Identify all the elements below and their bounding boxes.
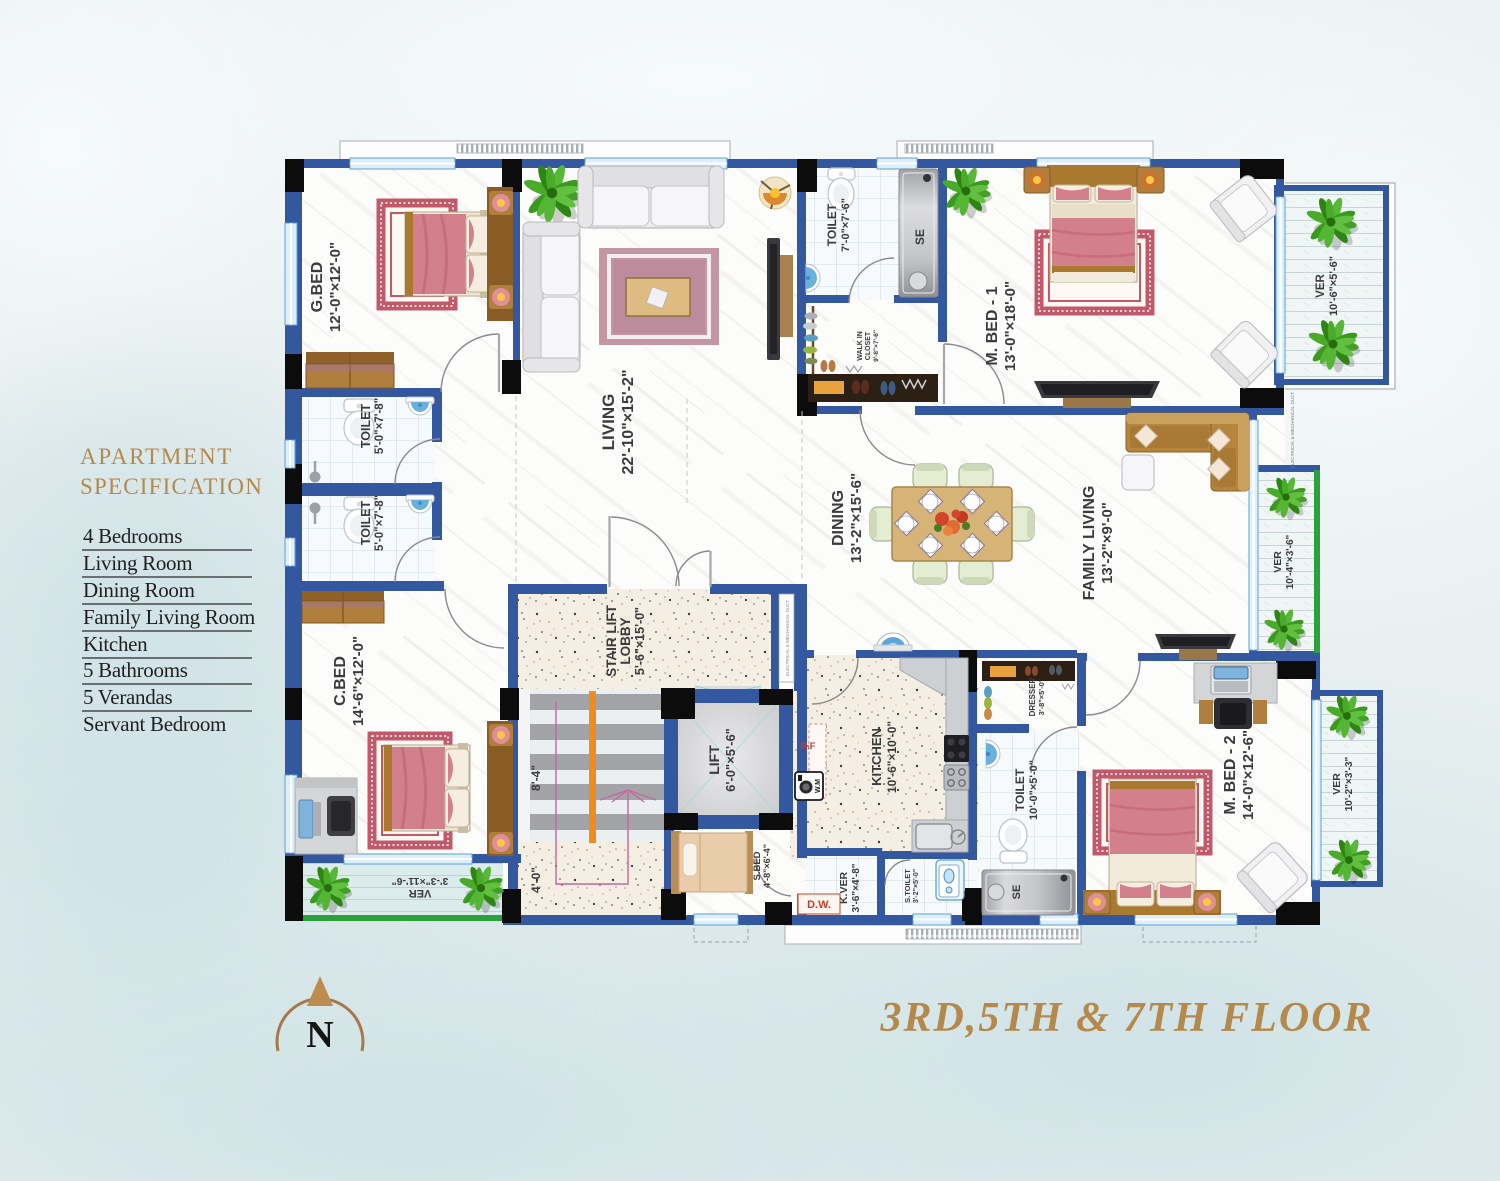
svg-text:FAMILY LIVING: FAMILY LIVING	[1081, 486, 1098, 601]
svg-text:LOBBY: LOBBY	[618, 617, 633, 664]
svg-text:CLOSET: CLOSET	[865, 331, 872, 360]
svg-text:M. BED - 1: M. BED - 1	[984, 286, 1001, 365]
svg-text:W.M: W.M	[815, 779, 822, 793]
svg-text:SE: SE	[913, 229, 927, 245]
svg-text:13'-2"×15'-6": 13'-2"×15'-6"	[848, 473, 865, 563]
svg-text:Dining Room: Dining Room	[83, 578, 195, 602]
svg-text:13'-0"×18'-0": 13'-0"×18'-0"	[1002, 281, 1019, 371]
svg-text:4'-0": 4'-0"	[529, 867, 543, 893]
svg-text:3'-6"×4'-8": 3'-6"×4'-8"	[851, 863, 862, 912]
svg-text:22'-10"×15'-2": 22'-10"×15'-2"	[620, 369, 637, 474]
svg-text:7'-0"×7'-6": 7'-0"×7'-6"	[840, 198, 852, 252]
svg-text:4'-8"×6'-4": 4'-8"×6'-4"	[762, 844, 772, 888]
svg-text:5 Verandas: 5 Verandas	[83, 685, 172, 709]
svg-text:6'-0"×5'-6": 6'-0"×5'-6"	[723, 728, 738, 792]
svg-text:DINING: DINING	[830, 490, 847, 546]
svg-text:WALK IN: WALK IN	[857, 331, 864, 361]
svg-text:10'-2"×3'-3": 10'-2"×3'-3"	[1344, 756, 1355, 811]
svg-text:10'-6"×5'-6": 10'-6"×5'-6"	[1328, 256, 1340, 316]
svg-text:N: N	[306, 1014, 333, 1056]
svg-text:LIVING: LIVING	[599, 394, 618, 451]
svg-text:Servant Bedroom: Servant Bedroom	[83, 712, 226, 736]
svg-text:C.BED: C.BED	[332, 656, 349, 706]
svg-text:5'-0"×7'-8": 5'-0"×7'-8"	[374, 398, 386, 454]
svg-text:8'-4": 8'-4"	[529, 765, 543, 791]
svg-text:TOILET: TOILET	[359, 501, 373, 546]
svg-text:ELECTRICAL & MECHANICAL DUCT: ELECTRICAL & MECHANICAL DUCT	[1290, 392, 1295, 468]
svg-text:9'-8"×7'-6": 9'-8"×7'-6"	[873, 330, 880, 362]
svg-text:14'-6"×12'-0": 14'-6"×12'-0"	[350, 636, 367, 726]
svg-text:VER: VER	[1331, 773, 1343, 795]
svg-text:VER: VER	[1272, 551, 1284, 573]
svg-text:SPECIFICATION: SPECIFICATION	[80, 474, 263, 499]
svg-text:5 Bathrooms: 5 Bathrooms	[83, 658, 188, 682]
svg-text:STAIR LIFT: STAIR LIFT	[604, 604, 619, 676]
svg-text:LIFT: LIFT	[706, 745, 722, 775]
svg-text:3'-8"×5'-0": 3'-8"×5'-0"	[1037, 678, 1046, 715]
svg-text:D.W.: D.W.	[807, 899, 831, 911]
svg-text:Living Room: Living Room	[83, 551, 192, 575]
svg-text:12'-0"×12'-0": 12'-0"×12'-0"	[327, 242, 344, 332]
svg-text:10'-0"×5'-0": 10'-0"×5'-0"	[1028, 760, 1040, 820]
svg-text:5'-0"×7'-8": 5'-0"×7'-8"	[374, 495, 386, 551]
svg-text:G.BED: G.BED	[309, 262, 326, 313]
svg-text:4 Bedrooms: 4 Bedrooms	[83, 524, 182, 548]
svg-text:5'-6"×15'-0": 5'-6"×15'-0"	[633, 607, 647, 675]
svg-text:KITCHEN: KITCHEN	[869, 728, 884, 786]
svg-text:VER: VER	[1315, 273, 1327, 297]
svg-text:3'-3"×11'-6": 3'-3"×11'-6"	[392, 875, 449, 887]
svg-text:TOILET: TOILET	[825, 203, 839, 246]
svg-text:10'-6"×10'-0": 10'-6"×10'-0"	[885, 721, 899, 793]
svg-text:10'-4"×3'-6": 10'-4"×3'-6"	[1285, 534, 1296, 589]
svg-text:SE: SE	[1011, 885, 1023, 900]
svg-text:K.VER: K.VER	[838, 872, 850, 905]
svg-text:Kitchen: Kitchen	[83, 632, 148, 656]
svg-text:S.TOILET: S.TOILET	[903, 869, 912, 903]
svg-text:DRESSER: DRESSER	[1028, 677, 1037, 716]
svg-text:M. BED - 2: M. BED - 2	[1222, 735, 1239, 814]
svg-text:R.F: R.F	[801, 741, 816, 751]
svg-text:TOILET: TOILET	[359, 404, 373, 449]
svg-text:ELECTRICAL & MECHANICAL DUCT: ELECTRICAL & MECHANICAL DUCT	[785, 600, 790, 676]
svg-text:TOILET: TOILET	[1013, 768, 1027, 811]
svg-text:APARTMENT: APARTMENT	[80, 444, 233, 469]
svg-text:14'-0"×12'-6": 14'-0"×12'-6"	[1240, 730, 1257, 820]
svg-text:3'-2"×5'-0": 3'-2"×5'-0"	[913, 869, 920, 903]
svg-text:Family Living Room: Family Living Room	[83, 605, 255, 629]
svg-text:3RD,5TH & 7TH FLOOR: 3RD,5TH & 7TH FLOOR	[879, 995, 1373, 1041]
svg-text:13'-2"×9'-0": 13'-2"×9'-0"	[1099, 502, 1116, 584]
svg-text:VER: VER	[409, 887, 432, 899]
